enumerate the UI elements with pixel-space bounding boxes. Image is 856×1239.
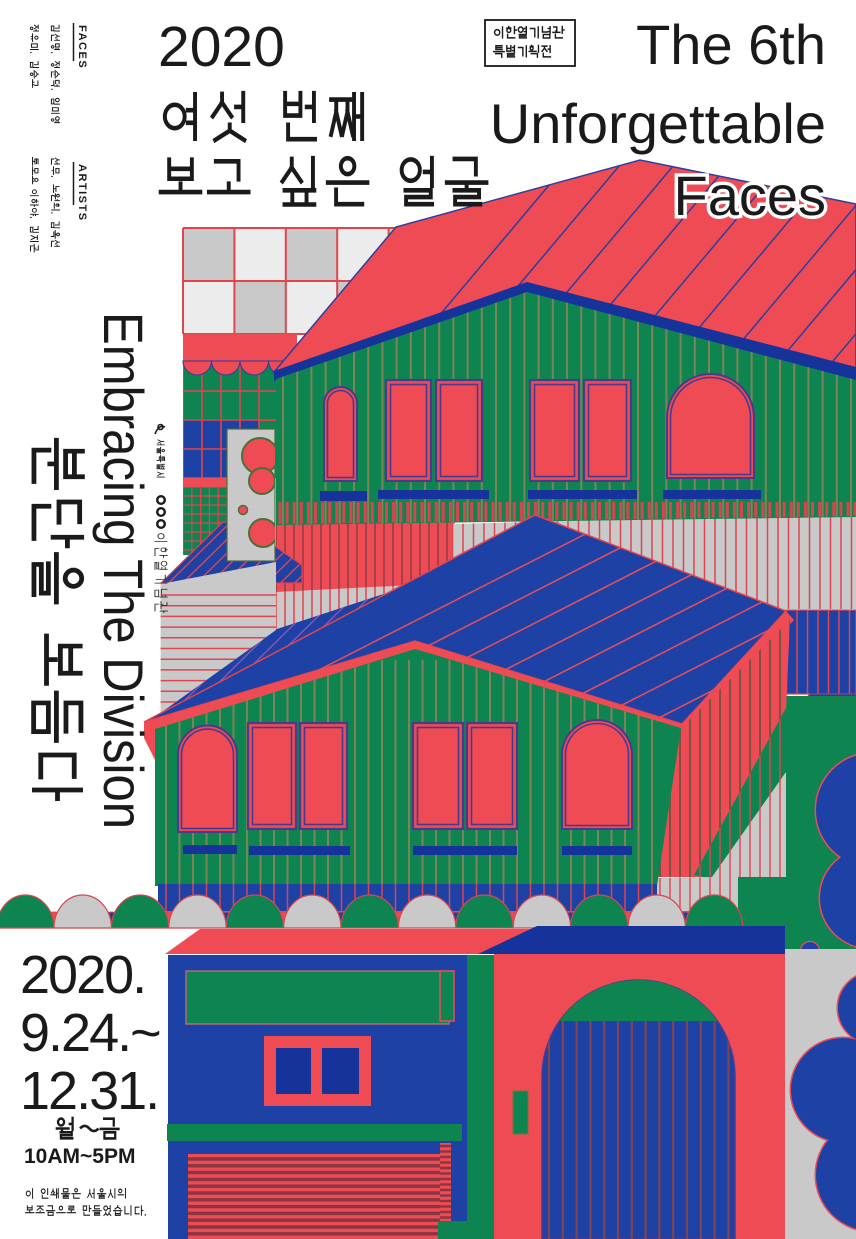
svg-text:12.31.: 12.31. [20,1061,158,1121]
svg-text:Embracing The Division: Embracing The Division [92,312,155,829]
svg-text:10AM~5PM: 10AM~5PM [24,1145,135,1168]
svg-text:2020.: 2020. [20,945,145,1005]
svg-text:ARTISTS: ARTISTS [76,164,88,222]
svg-text:2020: 2020 [158,15,285,79]
svg-text:Unforgettable: Unforgettable [490,92,826,155]
svg-text:FACES: FACES [76,25,88,69]
svg-text:Faces: Faces [674,164,827,227]
svg-text:The 6th: The 6th [636,13,826,76]
svg-text:9.24.~: 9.24.~ [20,1003,160,1063]
